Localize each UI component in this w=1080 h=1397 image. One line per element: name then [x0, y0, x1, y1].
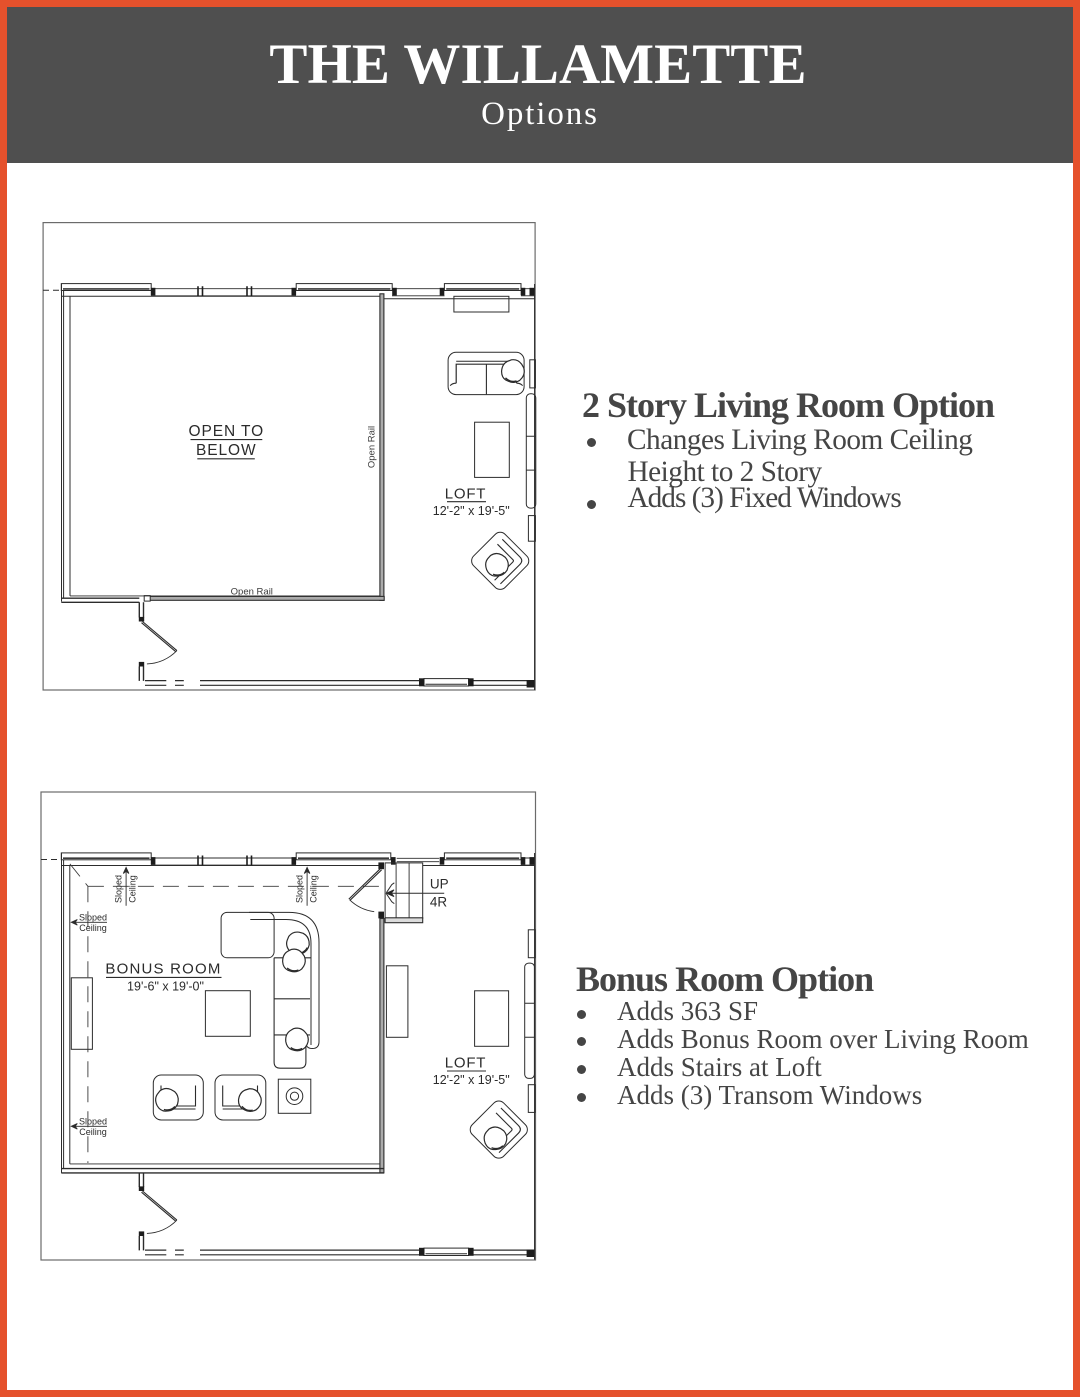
svg-text:Open Rail: Open Rail	[367, 426, 378, 468]
svg-text:19'-6" x 19'-0": 19'-6" x 19'-0"	[127, 980, 204, 994]
svg-text:Ceiling: Ceiling	[128, 875, 138, 903]
svg-text:Sloped: Sloped	[79, 1117, 107, 1127]
svg-text:4R: 4R	[430, 894, 448, 909]
svg-text:12'-2" x 19'-5": 12'-2" x 19'-5"	[433, 1073, 510, 1087]
svg-text:LOFT: LOFT	[445, 485, 487, 502]
svg-text:Sloped: Sloped	[79, 913, 107, 923]
svg-text:12'-2" x 19'-5": 12'-2" x 19'-5"	[433, 504, 510, 518]
svg-text:Ceiling: Ceiling	[79, 1127, 107, 1137]
svg-text:Open Rail: Open Rail	[231, 586, 273, 597]
svg-text:Sloped: Sloped	[114, 875, 124, 903]
svg-text:Ceiling: Ceiling	[79, 923, 107, 933]
svg-text:OPEN TO: OPEN TO	[189, 423, 265, 440]
svg-text:BELOW: BELOW	[196, 442, 256, 459]
svg-text:Ceiling: Ceiling	[309, 875, 319, 903]
svg-text:BONUS ROOM: BONUS ROOM	[105, 961, 221, 978]
svg-text:UP: UP	[430, 877, 449, 892]
svg-text:LOFT: LOFT	[445, 1055, 487, 1072]
svg-text:Sloped: Sloped	[295, 875, 305, 903]
